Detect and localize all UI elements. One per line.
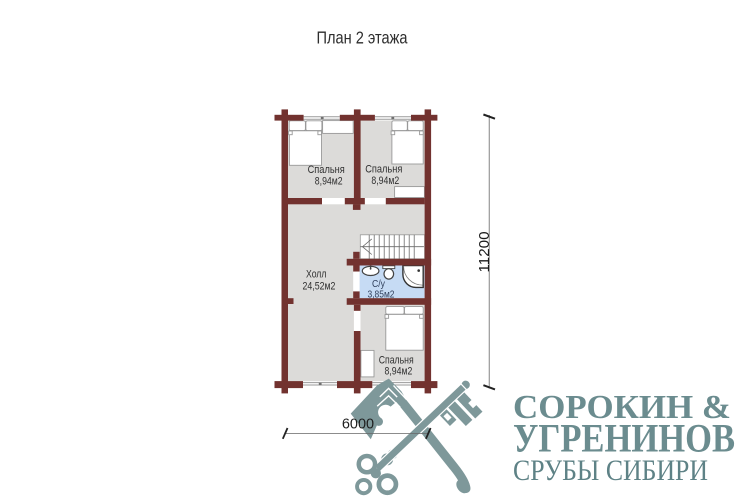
svg-text:План 2 этажа: План 2 этажа: [317, 28, 408, 48]
svg-text:СРУБЫ СИБИРИ: СРУБЫ СИБИРИ: [513, 454, 708, 487]
svg-text:8,94м2: 8,94м2: [385, 366, 413, 378]
svg-text:6000: 6000: [342, 417, 374, 433]
svg-text:8,94м2: 8,94м2: [315, 176, 343, 188]
svg-text:Спальня: Спальня: [365, 164, 402, 176]
svg-text:Холл: Холл: [306, 269, 326, 281]
svg-text:11200: 11200: [476, 232, 493, 273]
svg-text:8,94м2: 8,94м2: [371, 175, 399, 187]
svg-text:Спальня: Спальня: [308, 164, 345, 176]
svg-text:24,52м2: 24,52м2: [303, 280, 336, 292]
